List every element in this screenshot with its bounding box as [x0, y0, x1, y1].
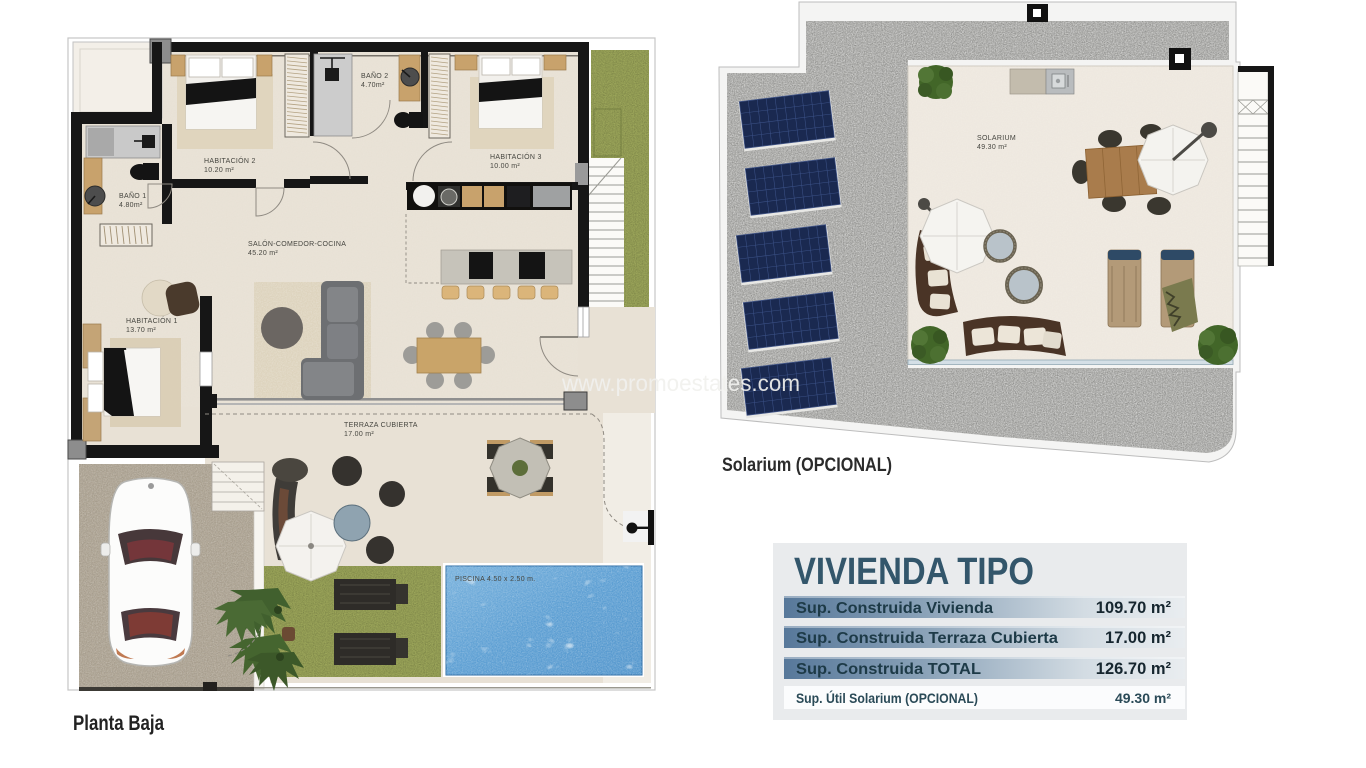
svg-text:49.30 m²: 49.30 m² [977, 144, 1007, 151]
svg-text:17.00 m²: 17.00 m² [344, 431, 374, 438]
svg-text:10.20 m²: 10.20 m² [204, 167, 234, 174]
svg-text:Solarium (OPCIONAL): Solarium (OPCIONAL) [722, 455, 892, 476]
svg-text:49.30 m²: 49.30 m² [1115, 690, 1171, 706]
svg-text:45.20 m²: 45.20 m² [248, 250, 278, 257]
svg-text:Planta Baja: Planta Baja [73, 712, 164, 735]
svg-text:HABITACIÓN 3: HABITACIÓN 3 [490, 152, 542, 161]
svg-text:HABITACIÓN 2: HABITACIÓN 2 [204, 156, 256, 165]
svg-text:4.70m²: 4.70m² [361, 82, 385, 89]
svg-text:SOLARIUM: SOLARIUM [977, 135, 1016, 142]
svg-text:4.80m²: 4.80m² [119, 202, 143, 209]
svg-text:13.70 m²: 13.70 m² [126, 327, 156, 334]
svg-text:VIVIENDA TIPO: VIVIENDA TIPO [794, 551, 1034, 593]
svg-text:TERRAZA CUBIERTA: TERRAZA CUBIERTA [344, 422, 418, 429]
svg-text:Sup. Construida Vivienda: Sup. Construida Vivienda [796, 600, 993, 617]
svg-text:www.promoestates.com: www.promoestates.com [561, 370, 800, 396]
svg-text:Sup. Construida TOTAL: Sup. Construida TOTAL [796, 661, 981, 678]
svg-text:Sup. Construida Terraza Cubier: Sup. Construida Terraza Cubierta [796, 630, 1058, 647]
svg-text:BAÑO 1: BAÑO 1 [119, 191, 146, 200]
svg-text:HABITACIÓN 1: HABITACIÓN 1 [126, 316, 178, 325]
svg-text:109.70 m²: 109.70 m² [1096, 599, 1172, 617]
svg-text:126.70 m²: 126.70 m² [1096, 660, 1172, 678]
svg-text:PISCINA 4.50 x 2.50 m.: PISCINA 4.50 x 2.50 m. [455, 576, 536, 583]
svg-text:17.00 m²: 17.00 m² [1105, 629, 1172, 647]
svg-text:BAÑO 2: BAÑO 2 [361, 71, 388, 80]
svg-text:10.00 m²: 10.00 m² [490, 163, 520, 170]
svg-text:SALÓN-COMEDOR-COCINA: SALÓN-COMEDOR-COCINA [248, 239, 346, 248]
svg-text:Sup. Útil Solarium (OPCIONAL): Sup. Útil Solarium (OPCIONAL) [796, 689, 978, 706]
